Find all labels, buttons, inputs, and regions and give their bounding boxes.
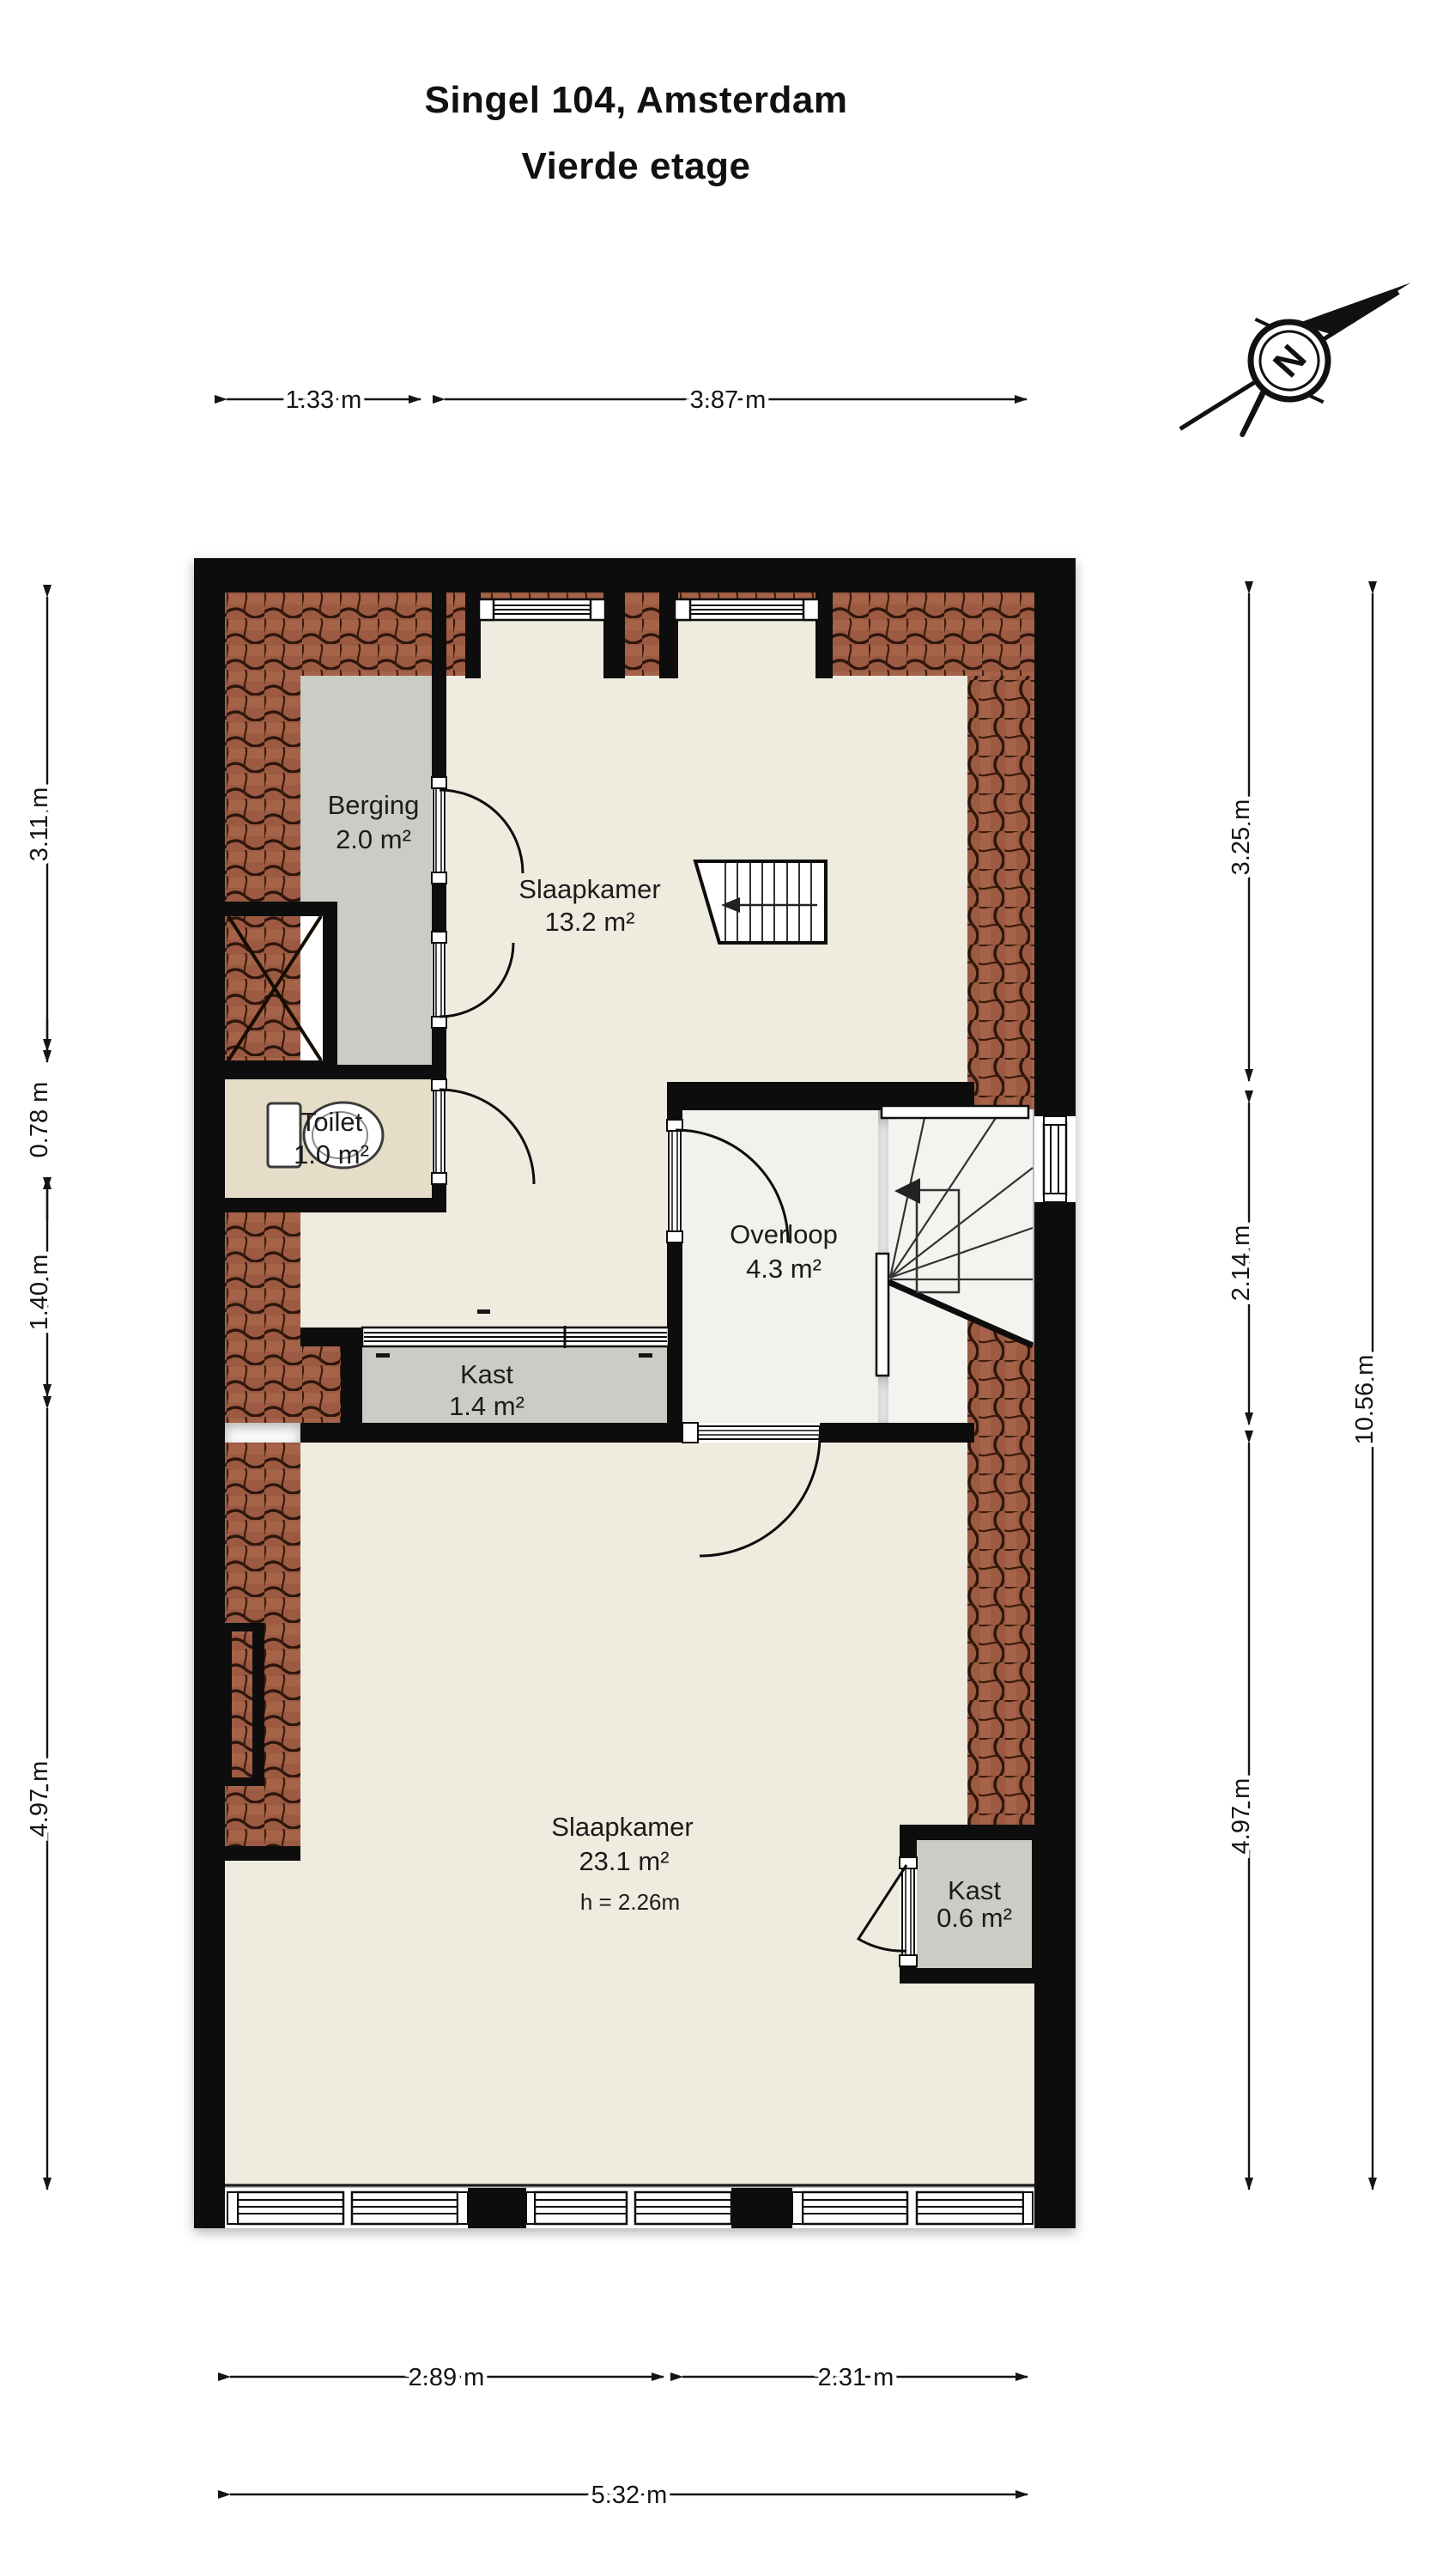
window-top-2	[675, 599, 819, 620]
label-toilet-name: Toilet	[300, 1107, 363, 1137]
svg-text:1.33 m: 1.33 m	[286, 386, 362, 414]
svg-text:5.32 m: 5.32 m	[591, 2482, 668, 2509]
svg-text:4.97 m: 4.97 m	[26, 1761, 53, 1838]
stairs-small	[695, 861, 826, 943]
dim-right-1: 3.25 m	[1228, 593, 1255, 1081]
floor-plan: Berging 2.0 m² Slaapkamer 13.2 m² Toilet…	[0, 0, 1449, 2576]
facade-pier	[731, 2188, 792, 2228]
svg-text:3.11 m: 3.11 m	[26, 787, 53, 862]
dim-bottom-total: 5.32 m	[230, 2482, 1028, 2509]
svg-text:10.56 m: 10.56 m	[1351, 1355, 1379, 1445]
plan-body	[194, 558, 1076, 2228]
label-berging-area: 2.0 m²	[336, 824, 411, 854]
label-kast2-area: 0.6 m²	[937, 1903, 1012, 1933]
kast1-front	[362, 1326, 669, 1348]
label-kast2-name: Kast	[948, 1875, 1001, 1905]
label-overloop-name: Overloop	[730, 1219, 838, 1249]
dim-left-2: 0.78 m	[26, 1018, 53, 1221]
label-berging-name: Berging	[328, 790, 420, 820]
svg-text:2.14 m: 2.14 m	[1228, 1225, 1255, 1302]
dim-top-2: 3.87 m	[445, 386, 1027, 414]
stairs-balustrade	[876, 1254, 888, 1376]
dim-right-3: 4.97 m	[1228, 1443, 1255, 2190]
window-right-wall	[1034, 1116, 1076, 1202]
dim-left-1: 3.11 m	[26, 597, 53, 1051]
svg-text:2.89 m: 2.89 m	[409, 2364, 485, 2391]
floor-slaapkamer2	[300, 1443, 967, 1825]
label-slaapkamer1-name: Slaapkamer	[518, 874, 660, 904]
dim-left-3: 1.40 m	[26, 1189, 53, 1396]
label-kast1-area: 1.4 m²	[449, 1391, 524, 1421]
label-slaapkamer1-area: 13.2 m²	[544, 907, 634, 937]
svg-text:2.31 m: 2.31 m	[818, 2364, 894, 2391]
dim-top-1: 1.33 m	[227, 386, 421, 414]
compass-icon: N	[1152, 239, 1440, 474]
label-toilet-area: 1.0 m²	[294, 1139, 369, 1170]
roof-strip-right-lower	[967, 1316, 1034, 1825]
label-overloop-area: 4.3 m²	[746, 1254, 822, 1284]
dim-bottom-1: 2.89 m	[230, 2364, 664, 2391]
facade-pier	[468, 2188, 526, 2228]
label-kast1-name: Kast	[460, 1359, 513, 1389]
dim-bottom-2: 2.31 m	[682, 2364, 1028, 2391]
svg-text:3.87 m: 3.87 m	[690, 386, 767, 414]
stairs-top-landing	[882, 1106, 1028, 1118]
bottom-window-band	[225, 2185, 1034, 2228]
label-slaapkamer2-name: Slaapkamer	[551, 1812, 693, 1842]
roof-strip-top	[225, 592, 1034, 676]
roof-strip-right-upper	[967, 676, 1034, 1109]
label-slaapkamer2-height: h = 2.26m	[580, 1889, 680, 1915]
roof-strip-left-upper	[225, 676, 300, 902]
svg-text:0.78 m: 0.78 m	[26, 1082, 53, 1158]
dim-left-4: 4.97 m	[26, 1408, 53, 2190]
chimney-recess	[225, 1623, 264, 1786]
dim-right-total: 10.56 m	[1351, 593, 1379, 2190]
window-top-1	[479, 599, 605, 620]
label-slaapkamer2-area: 23.1 m²	[579, 1846, 669, 1876]
svg-text:3.25 m: 3.25 m	[1228, 799, 1255, 876]
dim-right-2: 2.14 m	[1228, 1103, 1255, 1425]
svg-text:1.40 m: 1.40 m	[26, 1255, 53, 1331]
svg-text:4.97 m: 4.97 m	[1228, 1778, 1255, 1855]
